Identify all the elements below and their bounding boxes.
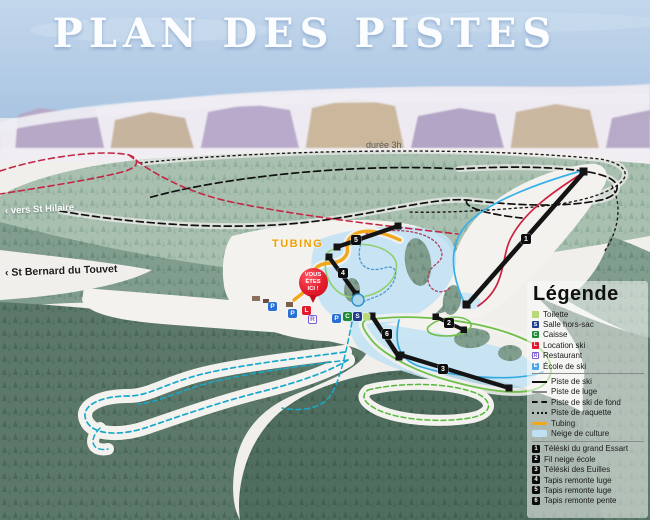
legend-item-salle-hors-sac: S Salle hors-sac — [532, 319, 644, 329]
lift-badge-4: 4 — [338, 268, 348, 278]
legend-item-piste-de-luge: Piste de luge — [532, 387, 644, 397]
salle-hors-sac-icon: S — [532, 321, 539, 328]
legend-item-location-ski: L Location ski — [532, 340, 644, 350]
piste-de-raquette-line-sample — [532, 412, 547, 414]
snow-feature-icon — [352, 294, 364, 306]
lift-badge-6: 6 — [382, 329, 392, 339]
tubing-label: TUBING — [272, 238, 323, 250]
duration-label: durée 3h — [366, 140, 402, 150]
page-title: PLAN DES PISTES — [0, 10, 610, 57]
lift-5-badge: 5 — [532, 486, 540, 494]
legend-item-toilette: Toilette — [532, 309, 644, 319]
parking-marker: P — [268, 302, 277, 311]
you-are-here-text: VOUS — [305, 272, 321, 279]
salle-hors-sac-marker: S — [353, 312, 362, 321]
piste-de-ski-line-sample — [532, 381, 547, 383]
legend-item-lift-6: 6 Tapis remonte pente — [532, 496, 644, 506]
caisse-marker: C — [343, 312, 352, 321]
legend-item-lift-4: 4 Tapis remonte luge — [532, 475, 644, 485]
legend-item-tubing: Tubing — [532, 418, 644, 428]
piste-de-luge-line-sample — [532, 391, 547, 393]
toilette-icon — [532, 311, 539, 318]
neige-de-culture-sample — [532, 430, 547, 437]
legend-item-lift-5: 5 Tapis remonte luge — [532, 485, 644, 495]
legend-panel: Légende Toilette S Salle hors-sac C Cais… — [527, 281, 648, 518]
lift-badge-5: 5 — [351, 235, 361, 245]
parking-marker: P — [332, 314, 341, 323]
lift-badge-2: 2 — [444, 318, 454, 328]
legend-item-piste-de-ski-de-fond: Piste de ski de fond — [532, 397, 644, 407]
restaurant-marker: R — [308, 315, 317, 324]
legend-divider — [532, 373, 644, 374]
pin-tip — [309, 295, 317, 303]
lift-2-badge: 2 — [532, 455, 540, 463]
legend-divider — [532, 441, 644, 442]
parking-marker: P — [288, 309, 297, 318]
legend-item-lift-2: 2 Fil neige école — [532, 454, 644, 464]
legend-item-piste-de-raquette: Piste de raquette — [532, 408, 644, 418]
lift-badge-3: 3 — [438, 364, 448, 374]
piste-map: PLAN DES PISTES durée 3h TUBING ‹ vers S… — [0, 0, 650, 520]
lift-3-badge: 3 — [532, 466, 540, 474]
lift-badge-1: 1 — [521, 234, 531, 244]
location-ski-icon: L — [532, 342, 539, 349]
piste-de-ski-de-fond-line-sample — [532, 401, 547, 403]
restaurant-icon: R — [532, 352, 539, 359]
lift-6-badge: 6 — [532, 497, 540, 505]
tubing-line-sample — [532, 422, 547, 425]
ecole-de-ski-icon: E — [532, 363, 539, 370]
you-are-here-pin: VOUS ÊTES ICI ! — [298, 268, 328, 303]
legend-item-lift-1: 1 Téléski du grand Essart — [532, 444, 644, 454]
legend-item-caisse: C Caisse — [532, 330, 644, 340]
lift-4-badge: 4 — [532, 476, 540, 484]
legend-item-piste-de-ski: Piste de ski — [532, 376, 644, 386]
legend-item-ecole-de-ski: E École de ski — [532, 361, 644, 371]
lift-1-badge: 1 — [532, 445, 540, 453]
legend-item-lift-3: 3 Téléski des Euilles — [532, 464, 644, 474]
toilette-marker — [363, 313, 370, 320]
location-ski-marker: L — [302, 306, 311, 315]
caisse-icon: C — [532, 331, 539, 338]
legend-item-neige-de-culture: Neige de culture — [532, 428, 644, 438]
legend-title: Légende — [533, 283, 644, 306]
legend-item-restaurant: R Restaurant — [532, 351, 644, 361]
